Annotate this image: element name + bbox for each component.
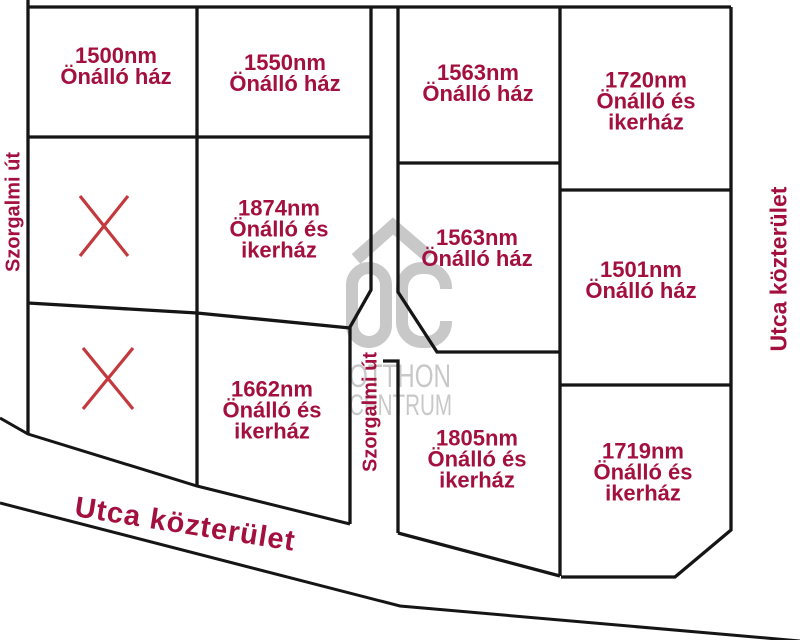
parcel-map: OTTHON CENTRUM [0, 0, 800, 640]
plot-label-1662: 1662nm Önálló és ikerház [214, 380, 330, 443]
divider-row-middle-left-block [28, 303, 350, 328]
x-mark-icon [83, 348, 133, 409]
plot-label-1805: 1805nm Önálló és ikerház [419, 429, 535, 492]
road-label-szorgalmi-ut-middle: Szorgalmi út [360, 352, 383, 472]
plot-label-1501: 1501nm Önálló ház [566, 260, 716, 302]
plot-label-1563-middle: 1563nm Önálló ház [402, 228, 552, 270]
plot-label-1874: 1874nm Önálló és ikerház [221, 199, 337, 262]
plot-type-value: Önálló és ikerház [214, 401, 330, 443]
x-mark-icon [80, 196, 128, 256]
middle-road-right-edge [398, 7, 560, 352]
plot-label-1719: 1719nm Önálló és ikerház [585, 442, 701, 505]
plot-type-value: Önálló ház [36, 67, 196, 88]
plot-type-value: Önálló és ikerház [419, 450, 535, 492]
plot-label-1720: 1720nm Önálló és ikerház [588, 71, 704, 134]
plot-label-1563-top: 1563nm Önálló ház [403, 63, 553, 105]
road-label-szorgalmi-ut-left: Szorgalmi út [3, 152, 26, 272]
plot-type-value: Önálló és ikerház [585, 463, 701, 505]
plot-type-value: Önálló ház [402, 249, 552, 270]
plot-type-value: Önálló és ikerház [221, 220, 337, 262]
plot-type-value: Önálló ház [566, 281, 716, 302]
plot-label-1500: 1500nm Önálló ház [36, 46, 196, 88]
plot-1805-bottom-edge [398, 533, 560, 576]
plot-type-value: Önálló ház [205, 74, 365, 95]
plot-type-value: Önálló és ikerház [588, 92, 704, 134]
street-label-utca-kozterulet-right: Utca közterület [766, 187, 793, 352]
plot-type-value: Önálló ház [403, 84, 553, 105]
plot-label-1550: 1550nm Önálló ház [205, 53, 365, 95]
